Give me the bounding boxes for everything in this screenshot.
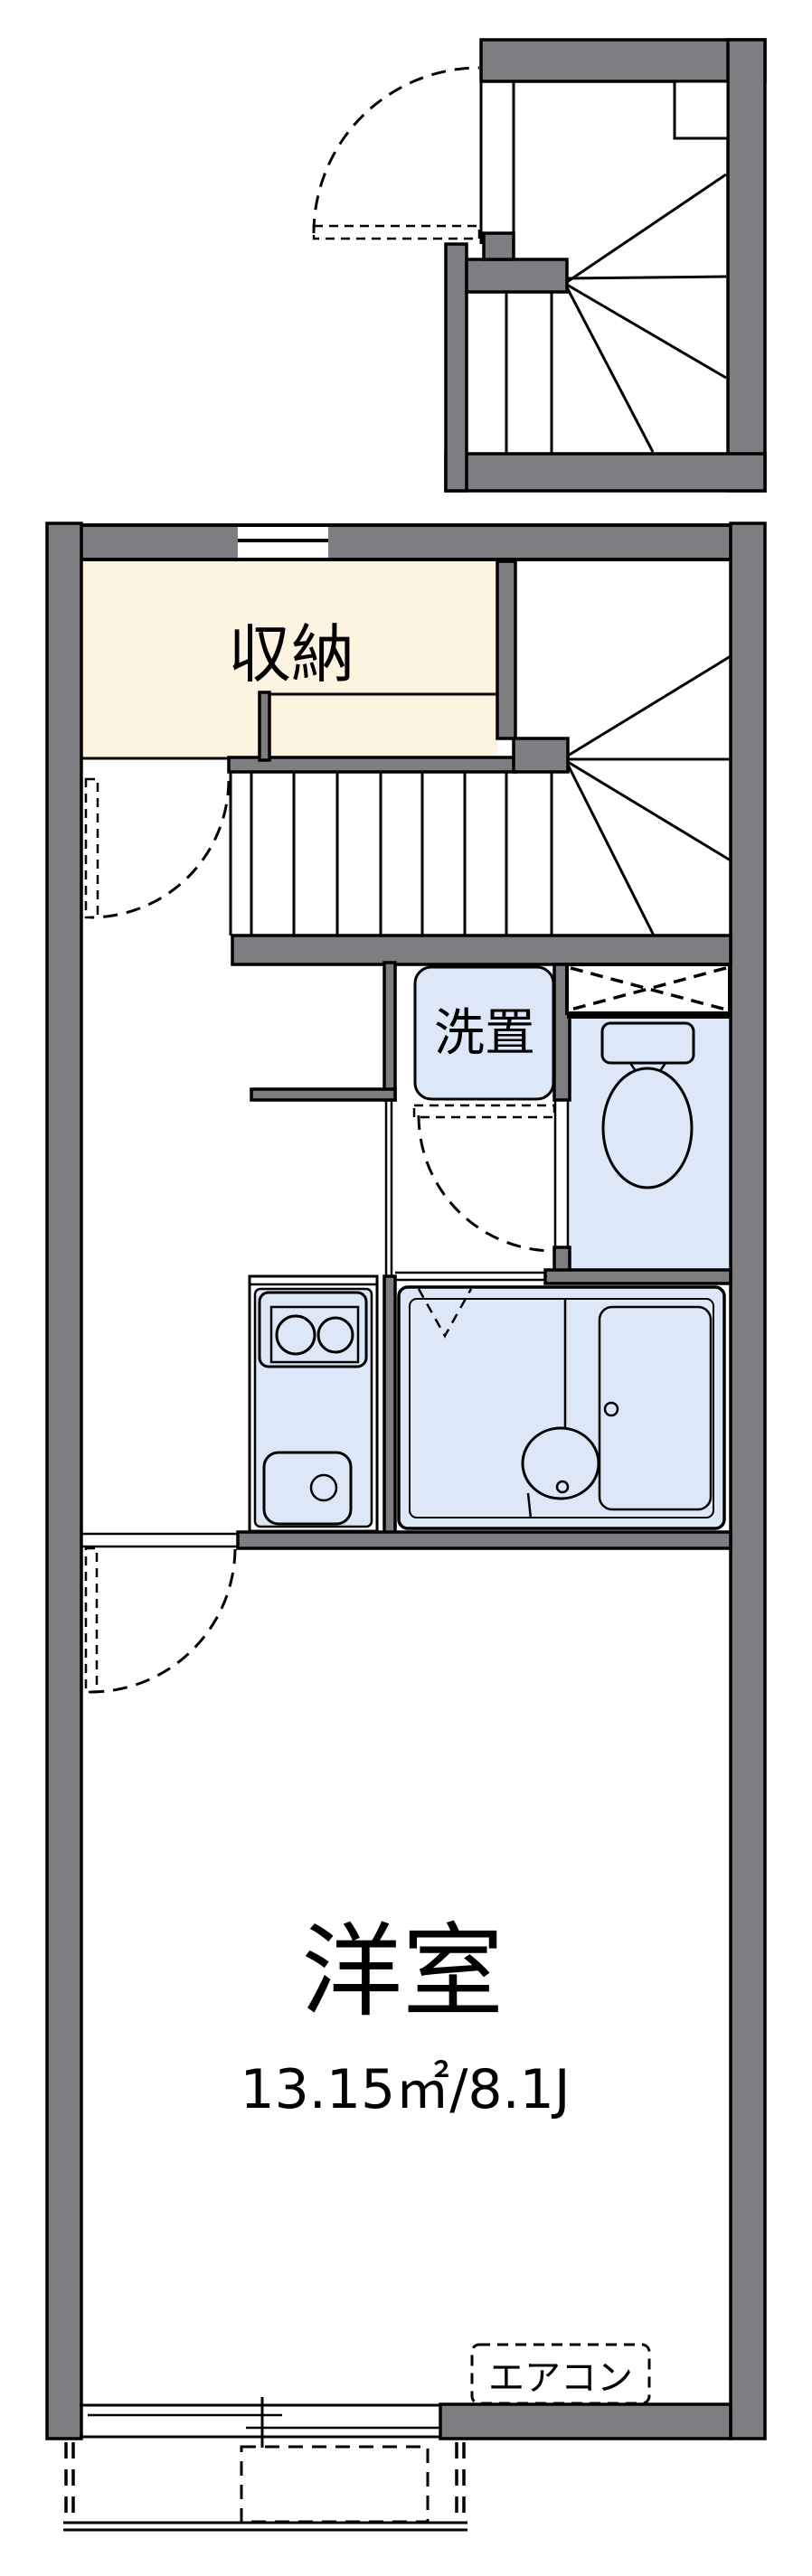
stair-house-right-wall — [728, 40, 765, 491]
south-window — [80, 2397, 440, 2448]
top-window-mid-line — [238, 539, 328, 542]
stair-house-newel-wall — [467, 259, 567, 292]
bath-drain-cover — [523, 1428, 599, 1499]
stove-burner-right-icon — [318, 1318, 353, 1352]
toilet-bowl — [603, 1068, 692, 1188]
stair-house-corner-box — [675, 81, 728, 138]
room-label: 洋室 — [301, 1913, 504, 2031]
toilet-top-border — [567, 1013, 731, 1019]
floor-plan-page: 収納 — [0, 0, 812, 2576]
door-swing-arc — [314, 68, 479, 233]
kitchen-sink — [264, 1453, 351, 1524]
door-leaf — [314, 226, 479, 239]
storage-right-wall — [497, 561, 515, 738]
kitchen-bath-wall — [384, 1276, 395, 1534]
hall-corner-stub-wall — [251, 1089, 395, 1100]
entrance-door-swing — [314, 68, 479, 239]
kitchen — [250, 1276, 377, 1531]
stair-house-bottom-wall — [446, 454, 765, 491]
aircon-label: エアコン — [488, 2357, 633, 2399]
hatch-box — [567, 964, 730, 1013]
toilet-tank — [602, 1023, 694, 1063]
shaft-hatch-box — [567, 964, 731, 1019]
stove-burner-left-icon — [277, 1316, 315, 1354]
stair-bottom-wall — [232, 935, 731, 964]
main-unit: 収納 — [47, 523, 765, 2448]
stair-newel-wall — [514, 738, 568, 772]
stair-house-left-wall — [446, 244, 467, 491]
storage-shelf-stub — [260, 692, 269, 760]
balcony — [63, 2442, 467, 2530]
balcony-hatch-outline — [241, 2447, 428, 2522]
unit-right-wall — [731, 523, 765, 2439]
room-top-wall — [238, 1532, 731, 1548]
stair-house-top-wall — [481, 40, 765, 81]
bath-top-wall — [545, 1270, 731, 1283]
bathroom — [399, 1287, 724, 1528]
floor-plan: 収納 — [0, 0, 812, 2576]
storage-bottom-wall — [229, 757, 515, 772]
entrance-stair-structure — [314, 40, 765, 491]
storage-label: 収納 — [228, 617, 354, 691]
stair-house-newel-tab — [484, 233, 514, 259]
unit-bottom-wall-right — [440, 2404, 731, 2439]
room-area-text: 13.15㎡/8.1J — [240, 2058, 570, 2121]
toilet-room — [602, 1023, 694, 1188]
unit-left-wall — [47, 523, 81, 2439]
hall-laundry-wall — [384, 963, 395, 1100]
laundry-label: 洗置 — [434, 1004, 535, 1063]
unit-top-wall-gray — [51, 527, 761, 558]
